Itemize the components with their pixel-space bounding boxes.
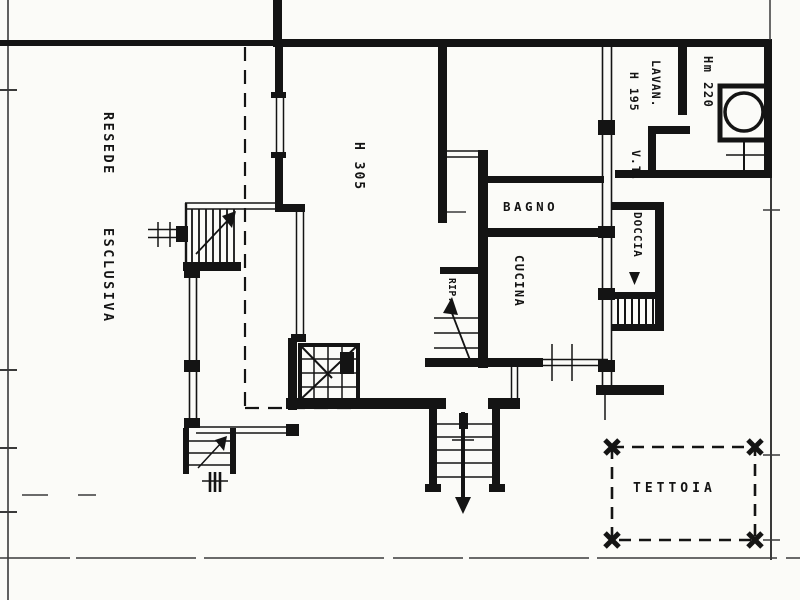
label-lavanderia: LAVAN. (649, 60, 663, 108)
floorplan-canvas: RESEDE ESCLUSIVA H 305 BAGNO CUCINA RIP.… (0, 0, 800, 600)
label-lavanderia-height: H 195 (627, 72, 641, 112)
label-main-room-height: H 305 (351, 142, 366, 191)
doccia-arrow (629, 272, 640, 285)
doccia-step-hatch (618, 296, 653, 327)
west-lower-enclosure (183, 268, 299, 492)
south-exterior-stair (425, 409, 505, 514)
label-ripostiglio: RIP. (446, 278, 457, 303)
label-esclusiva: ESCLUSIVA (100, 228, 116, 324)
stair-down-arrow (455, 497, 471, 514)
label-vt: V.T. (629, 150, 643, 182)
label-cucina: CUCINA (512, 255, 526, 307)
label-tettoia: TETTOIA (633, 481, 716, 496)
label-annex-height: Hm 220 (701, 56, 715, 108)
west-exterior-stair (148, 203, 277, 271)
lower-stub-hatch (202, 472, 228, 492)
boiler-circle (725, 93, 763, 131)
internal-stair (434, 267, 485, 360)
label-resede: RESEDE (100, 112, 116, 176)
label-bagno: BAGNO (503, 199, 558, 214)
floorplan-sheet: RESEDE ESCLUSIVA H 305 BAGNO CUCINA RIP.… (0, 0, 800, 600)
lower-stair-arrow (215, 436, 227, 451)
label-doccia: DOCCIA (631, 212, 644, 258)
